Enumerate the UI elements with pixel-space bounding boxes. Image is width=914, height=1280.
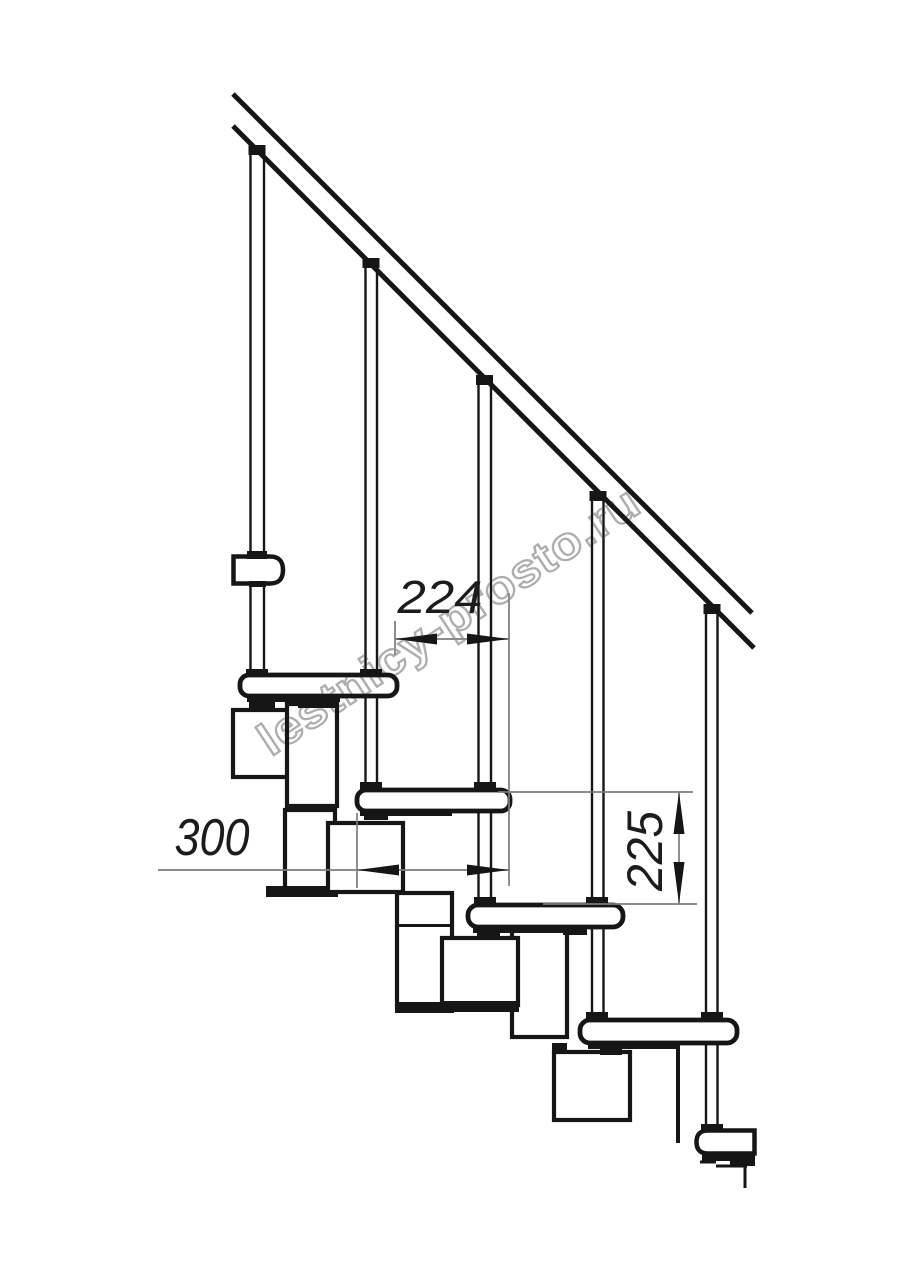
watermark-text: lestnicy-prosto.ru xyxy=(248,475,649,765)
baluster-base xyxy=(586,1012,608,1020)
baluster-base xyxy=(474,782,496,790)
baluster-collar xyxy=(247,551,267,559)
baluster-base xyxy=(701,1124,723,1132)
baluster-4 xyxy=(592,496,604,1020)
tread-6-cut xyxy=(697,1131,755,1154)
arrow-right xyxy=(467,634,509,645)
fittings xyxy=(246,145,755,1166)
module-box xyxy=(442,938,518,1005)
module-box xyxy=(512,927,567,1037)
tread-4 xyxy=(468,905,623,927)
tread-mount-tab xyxy=(730,1152,755,1166)
tread-mount xyxy=(588,1042,678,1049)
dim-300-label: 300 xyxy=(175,809,250,867)
module-box xyxy=(328,823,403,892)
tread-3 xyxy=(357,790,510,811)
module-foot xyxy=(441,1001,519,1012)
dim-225-label: 225 xyxy=(617,811,673,892)
tread-mount-tab xyxy=(702,1152,730,1161)
baluster-base xyxy=(701,1012,723,1020)
dimension-225: 225 xyxy=(498,792,697,904)
tread-5 xyxy=(580,1020,737,1043)
arrow-down xyxy=(674,862,685,904)
baluster-1 xyxy=(251,150,265,677)
tread-mount-tab xyxy=(600,1048,622,1055)
staircase-technical-drawing: 224 300 225 lestnicy-prosto.ru xyxy=(0,0,914,1280)
tread-mount-tab xyxy=(563,926,587,935)
staircase-drawing-page: 224 300 225 lestnicy-prosto.ru xyxy=(0,0,914,1280)
arrow-up xyxy=(674,792,685,834)
baluster-base xyxy=(246,669,268,677)
tread-mount-tab xyxy=(364,814,388,820)
arrow-right xyxy=(467,865,509,876)
module-box xyxy=(554,1052,630,1120)
baluster-2 xyxy=(366,263,378,790)
tread-1-cut xyxy=(234,557,284,584)
tread-mount-tab xyxy=(477,931,500,937)
baluster-5 xyxy=(706,609,718,1132)
baluster-collar xyxy=(249,581,266,587)
baluster-base xyxy=(474,897,496,905)
baluster-base xyxy=(360,782,382,790)
